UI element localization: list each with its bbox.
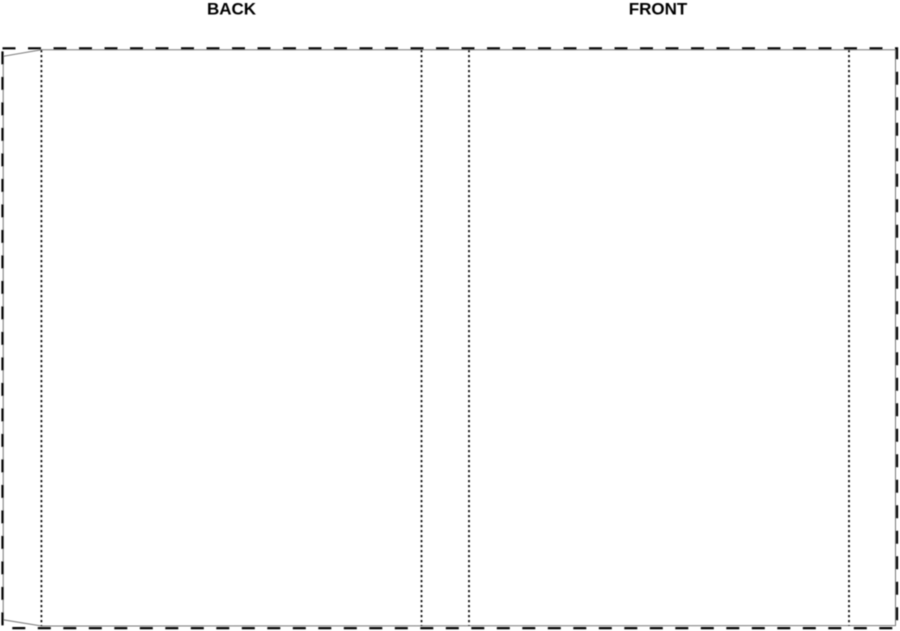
svg-text:FRONT: FRONT [629,0,688,19]
svg-text:BACK: BACK [207,0,257,19]
